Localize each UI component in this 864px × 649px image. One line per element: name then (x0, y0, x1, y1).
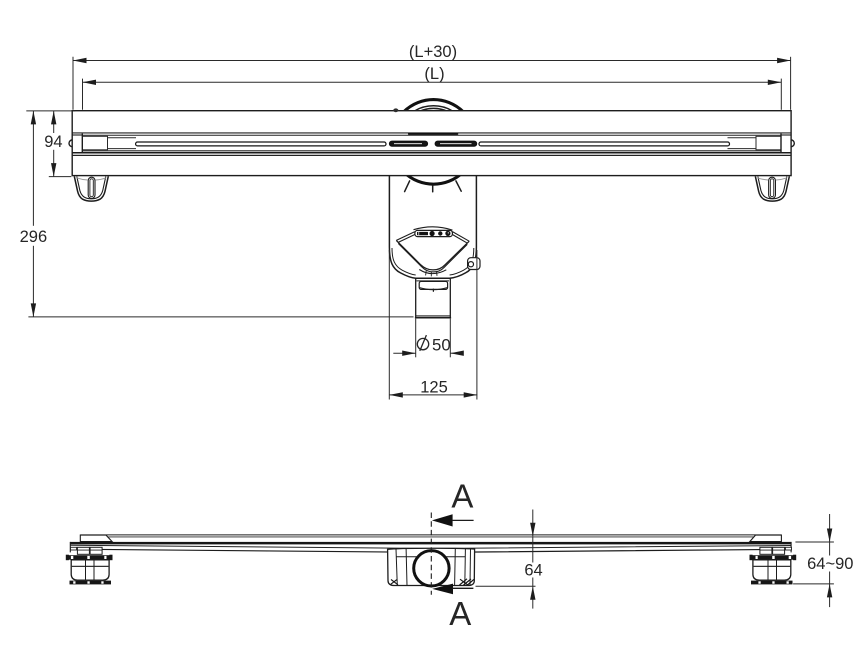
svg-text:296: 296 (20, 228, 48, 246)
svg-text:A: A (451, 477, 473, 514)
svg-text:50: 50 (432, 335, 451, 354)
svg-text:A: A (449, 595, 471, 632)
svg-text:64~90: 64~90 (807, 555, 853, 573)
svg-text:(L): (L) (424, 65, 444, 83)
svg-text:(L+30): (L+30) (409, 43, 457, 61)
svg-text:94: 94 (44, 133, 62, 151)
svg-text:64: 64 (524, 562, 542, 580)
svg-text:125: 125 (420, 378, 448, 396)
